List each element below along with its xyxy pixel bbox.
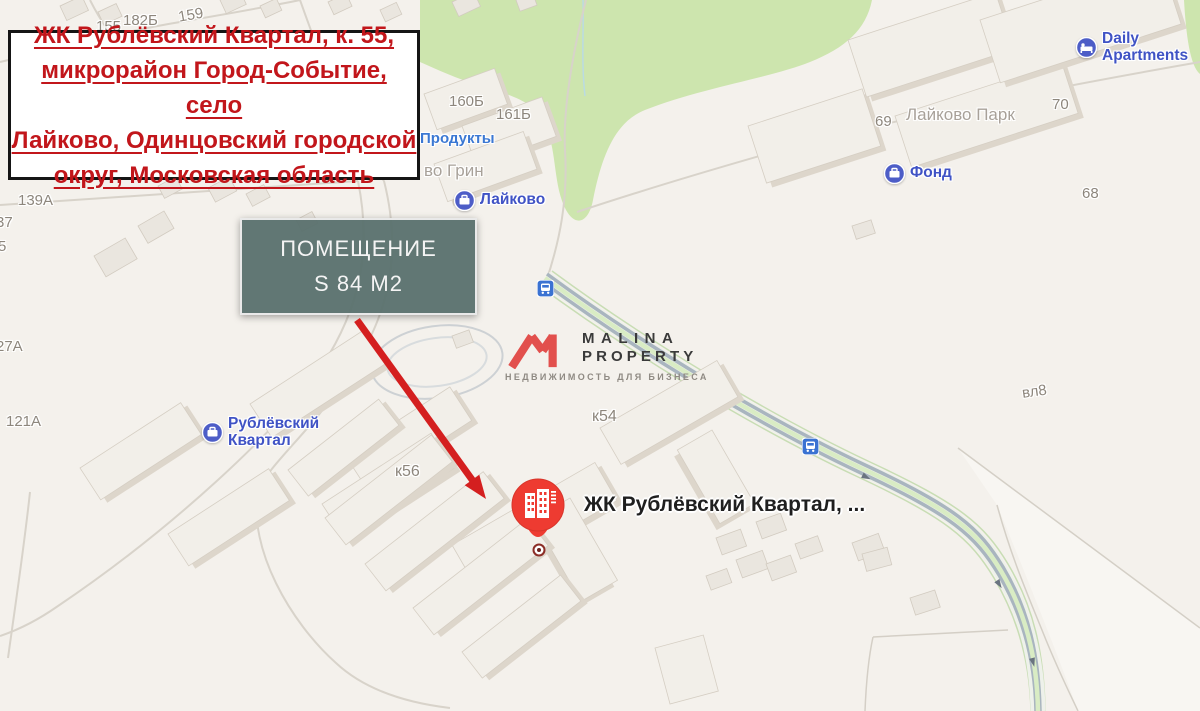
area-name-label: Лайково Парк — [906, 105, 1015, 125]
briefcase-icon — [884, 163, 905, 184]
pin-label: ЖК Рублёвский Квартал, ... — [584, 493, 865, 517]
building-number: 27А — [0, 338, 23, 355]
poi-label-line: Apartments — [1102, 48, 1188, 65]
area-name-label: во Грин — [424, 161, 484, 181]
building-number: 68 — [1082, 185, 1099, 202]
poi-label-produkty[interactable]: Продукты — [420, 130, 495, 147]
building-number: 69 — [875, 113, 892, 130]
building-number: к56 — [395, 463, 420, 481]
poi-laikovo[interactable]: Лайково — [454, 190, 545, 211]
poi-label-line: Квартал — [228, 433, 319, 450]
building-number: 161Б — [496, 106, 531, 123]
premises-title: ПОМЕЩЕНИЕ — [280, 236, 437, 262]
logo-tagline: НЕДВИЖИМОСТЬ ДЛЯ БИЗНЕСА — [505, 372, 709, 382]
bus-icon[interactable] — [537, 280, 554, 297]
bus-icon[interactable] — [802, 438, 819, 455]
address-box: ЖК Рублёвский Квартал, к. 55, микрорайон… — [8, 30, 420, 180]
building-number: 121А — [6, 413, 41, 430]
malina-property-logo: MALINA PROPERTY НЕДВИЖИМОСТЬ ДЛЯ БИЗНЕСА — [505, 329, 709, 382]
poi-label-line: Daily — [1102, 31, 1188, 48]
logo-mark-icon — [505, 329, 573, 369]
building-number: 160Б — [449, 93, 484, 110]
building-number: к54 — [592, 408, 617, 426]
address-line: Лайково, Одинцовский городской — [11, 123, 417, 158]
poi-label-line: Рублёвский — [228, 416, 319, 433]
briefcase-icon — [454, 190, 475, 211]
pin-anchor-center — [537, 548, 541, 552]
poi-label: Лайково — [480, 192, 545, 209]
poi-label: Фонд — [910, 165, 952, 182]
address-line: округ, Московская область — [11, 158, 417, 193]
building-number: вл8 — [1021, 382, 1048, 402]
building-number: 70 — [1052, 96, 1069, 113]
premises-area-box: ПОМЕЩЕНИЕ S 84 М2 — [240, 218, 477, 315]
briefcase-icon — [202, 422, 223, 443]
logo-name-line1: MALINA — [582, 330, 697, 348]
address-line: микрорайон Город-Событие, село — [11, 53, 417, 123]
building-number: 5 — [0, 238, 6, 255]
location-pin[interactable] — [503, 470, 573, 562]
bed-icon — [1076, 37, 1097, 58]
poi-daily-apartments[interactable]: Daily Apartments — [1076, 31, 1188, 64]
building-number: 139А — [18, 192, 53, 209]
map-screenshot: { "overlays": { "address_box": { "lines"… — [0, 0, 1200, 711]
poi-fond[interactable]: Фонд — [884, 163, 952, 184]
premises-area-value: S 84 М2 — [314, 271, 403, 297]
building-number: 37 — [0, 214, 13, 231]
poi-rublyovsky-kvartal[interactable]: Рублёвский Квартал — [202, 416, 319, 449]
logo-name-line2: PROPERTY — [582, 348, 697, 366]
address-line: ЖК Рублёвский Квартал, к. 55, — [11, 18, 417, 53]
